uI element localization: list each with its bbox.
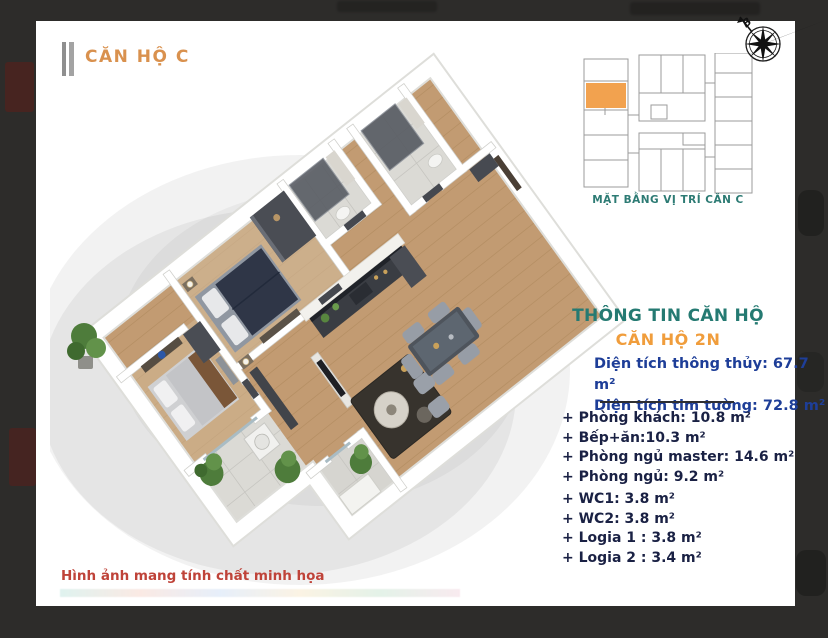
- dimmed-red-block: [5, 62, 34, 112]
- area-summary: Diện tích thông thủy: 67.7 m² Diện tích …: [594, 354, 828, 417]
- center-top-block: [639, 55, 705, 121]
- disclaimer-text: Hình ảnh mang tính chất minh họa: [61, 568, 325, 584]
- divider-line: [600, 401, 734, 403]
- info-panel-heading: THÔNG TIN CĂN HỘ: [545, 306, 791, 326]
- area-line-net: Diện tích thông thủy: 67.7 m²: [594, 354, 828, 396]
- room-item-kitchen: + Bếp+ăn:10.3 m²: [562, 431, 794, 446]
- room-item-master-bedroom: + Phòng ngủ master: 14.6 m²: [562, 450, 794, 465]
- room-item-wc1: + WC1: 3.8 m²: [562, 492, 794, 507]
- info-panel-subheading: CĂN HỘ 2N: [545, 330, 791, 349]
- dimmed-blob: [796, 550, 826, 596]
- room-item-wc2: + WC2: 3.8 m²: [562, 512, 794, 527]
- watermark-strip: [60, 589, 460, 597]
- highlighted-unit-c: [586, 83, 626, 108]
- room-item-logia2: + Logia 2 : 3.4 m²: [562, 551, 794, 566]
- room-item-living: + Phòng khách: 10.8 m²: [562, 411, 794, 426]
- left-wing: [584, 59, 628, 187]
- location-map-caption: MẶT BẰNG VỊ TRÍ CĂN C: [560, 194, 776, 206]
- center-bottom-block: [639, 133, 705, 191]
- room-item-logia1: + Logia 1 : 3.8 m²: [562, 531, 794, 546]
- room-item-bedroom: + Phòng ngủ: 9.2 m²: [562, 470, 794, 485]
- dimmed-blob: [798, 190, 824, 236]
- dimmed-text-artifact: [337, 1, 437, 12]
- dimmed-red-block: [9, 428, 36, 486]
- lightbox-page: { "card": { "title": "CĂN HỘ C", "discla…: [0, 0, 828, 638]
- compass-label: B: [740, 15, 755, 30]
- compass-north-icon: B: [716, 6, 828, 90]
- room-area-list: + Phòng khách: 10.8 m² + Bếp+ăn:10.3 m² …: [562, 411, 794, 570]
